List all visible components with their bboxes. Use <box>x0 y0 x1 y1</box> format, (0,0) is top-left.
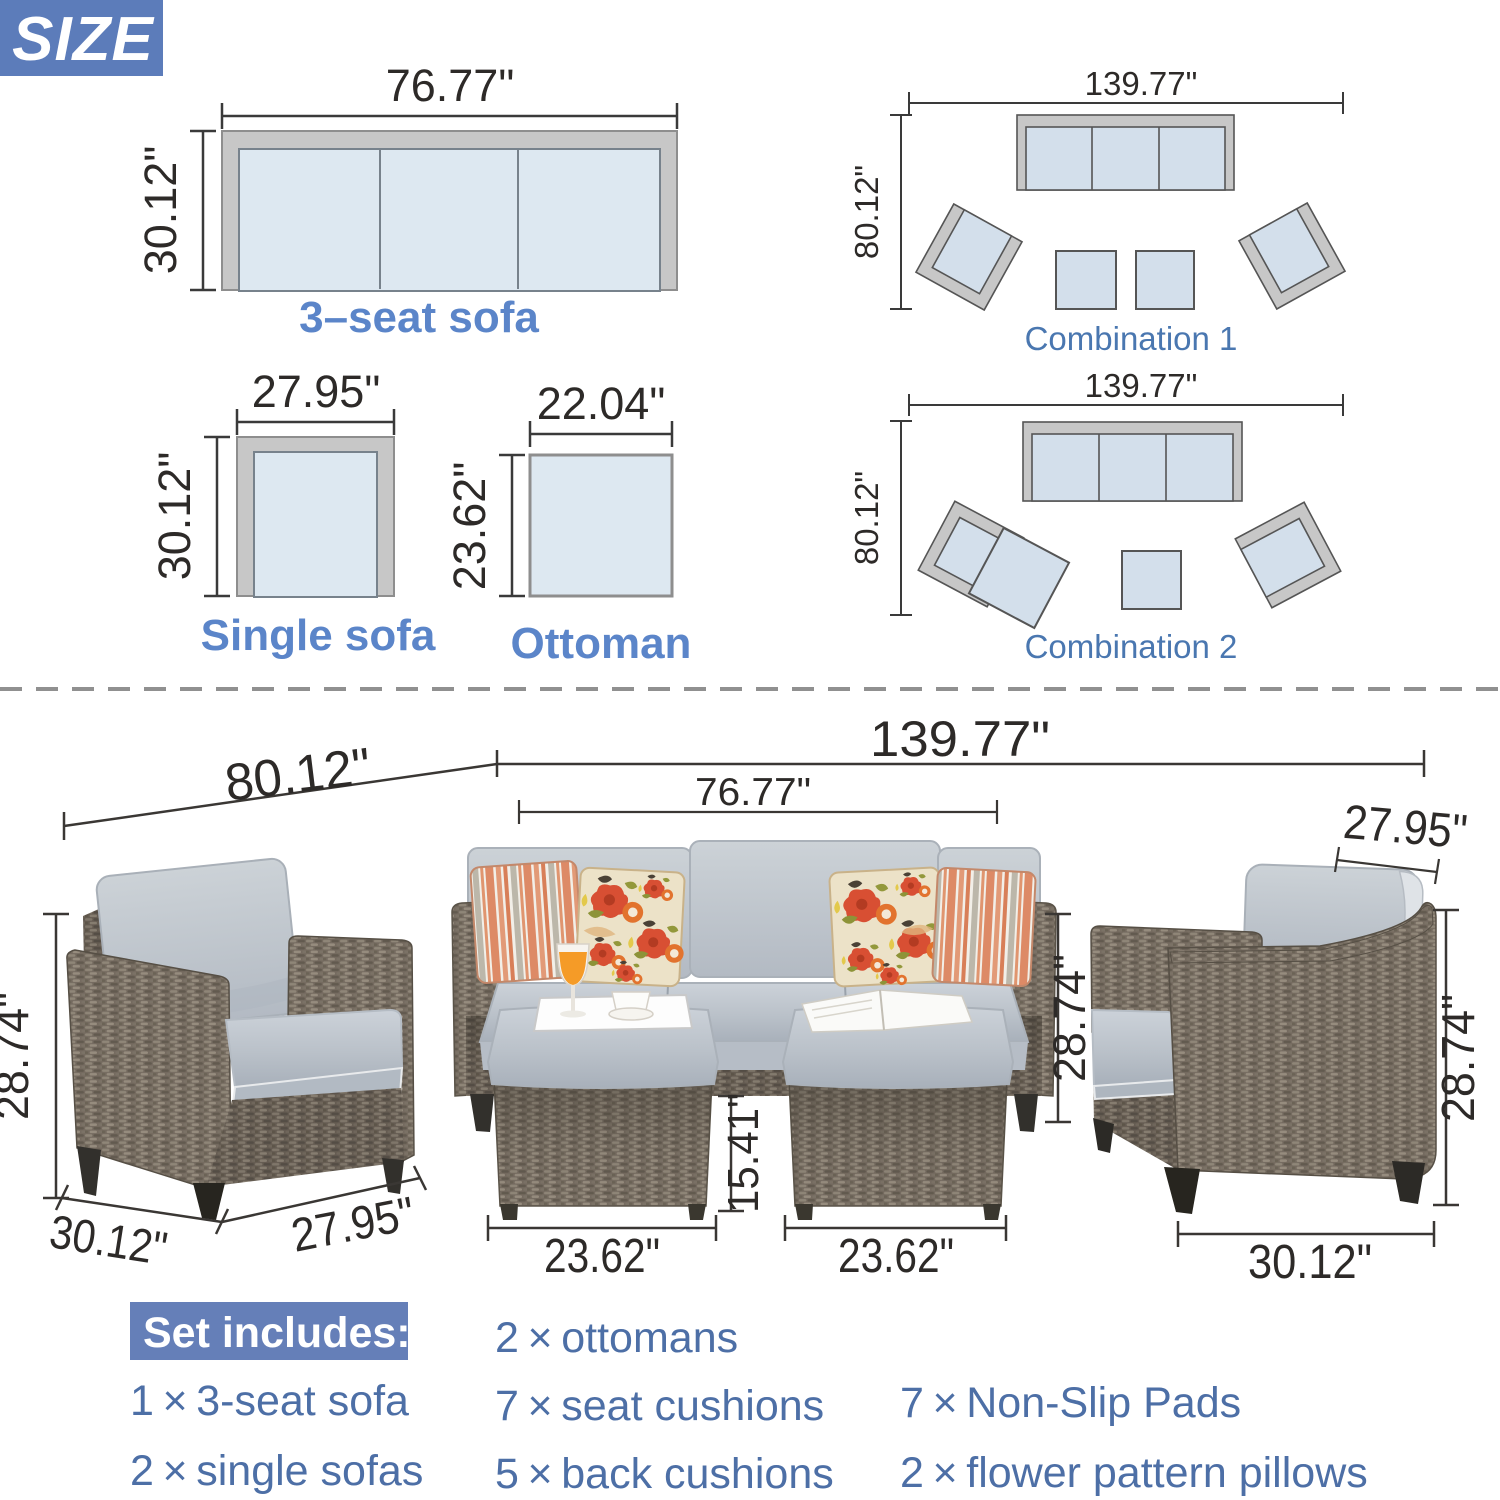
svg-text:Set includes:: Set includes: <box>143 1309 411 1357</box>
svg-text:139.77": 139.77" <box>870 711 1050 767</box>
svg-text:2 × ottomans: 2 × ottomans <box>495 1314 738 1362</box>
svg-text:28.74": 28.74" <box>0 992 38 1120</box>
svg-text:80.12": 80.12" <box>848 165 885 259</box>
svg-text:7 × seat cushions: 7 × seat cushions <box>495 1382 824 1430</box>
svg-text:Combination 1: Combination 1 <box>1025 320 1238 357</box>
svg-text:139.77": 139.77" <box>1085 65 1198 102</box>
svg-text:27.95": 27.95" <box>252 366 381 417</box>
svg-text:27.95": 27.95" <box>287 1186 419 1262</box>
svg-text:30.12": 30.12" <box>46 1204 171 1275</box>
svg-text:Ottoman: Ottoman <box>511 619 692 668</box>
svg-text:3–seat sofa: 3–seat sofa <box>299 293 539 342</box>
svg-text:76.77": 76.77" <box>695 771 811 814</box>
svg-text:5 × back cushions: 5 × back cushions <box>495 1450 834 1498</box>
svg-text:76.77": 76.77" <box>386 60 515 111</box>
svg-text:28.74": 28.74" <box>1044 954 1095 1082</box>
svg-text:15.41": 15.41" <box>719 1093 768 1213</box>
svg-text:1 × 3-seat sofa: 1 × 3-seat sofa <box>130 1377 409 1425</box>
svg-text:23.62": 23.62" <box>544 1230 660 1283</box>
svg-text:7 × Non-Slip Pads: 7 × Non-Slip Pads <box>900 1379 1241 1427</box>
svg-text:2 × flower pattern pillows: 2 × flower pattern pillows <box>900 1449 1368 1497</box>
svg-text:30.12": 30.12" <box>149 452 200 581</box>
svg-text:SIZE: SIZE <box>12 5 154 74</box>
svg-text:23.62": 23.62" <box>444 462 495 591</box>
svg-text:30.12": 30.12" <box>135 146 186 275</box>
svg-text:Combination 2: Combination 2 <box>1025 628 1238 665</box>
svg-text:80.12": 80.12" <box>222 737 374 812</box>
svg-text:23.62": 23.62" <box>838 1230 954 1283</box>
svg-text:28.74": 28.74" <box>1432 994 1484 1122</box>
svg-text:22.04": 22.04" <box>537 378 666 429</box>
svg-text:Single sofa: Single sofa <box>201 611 436 660</box>
svg-text:2 × single sofas: 2 × single sofas <box>130 1447 423 1495</box>
svg-text:27.95": 27.95" <box>1341 796 1469 860</box>
svg-text:139.77": 139.77" <box>1085 367 1198 404</box>
svg-text:80.12": 80.12" <box>848 471 885 565</box>
